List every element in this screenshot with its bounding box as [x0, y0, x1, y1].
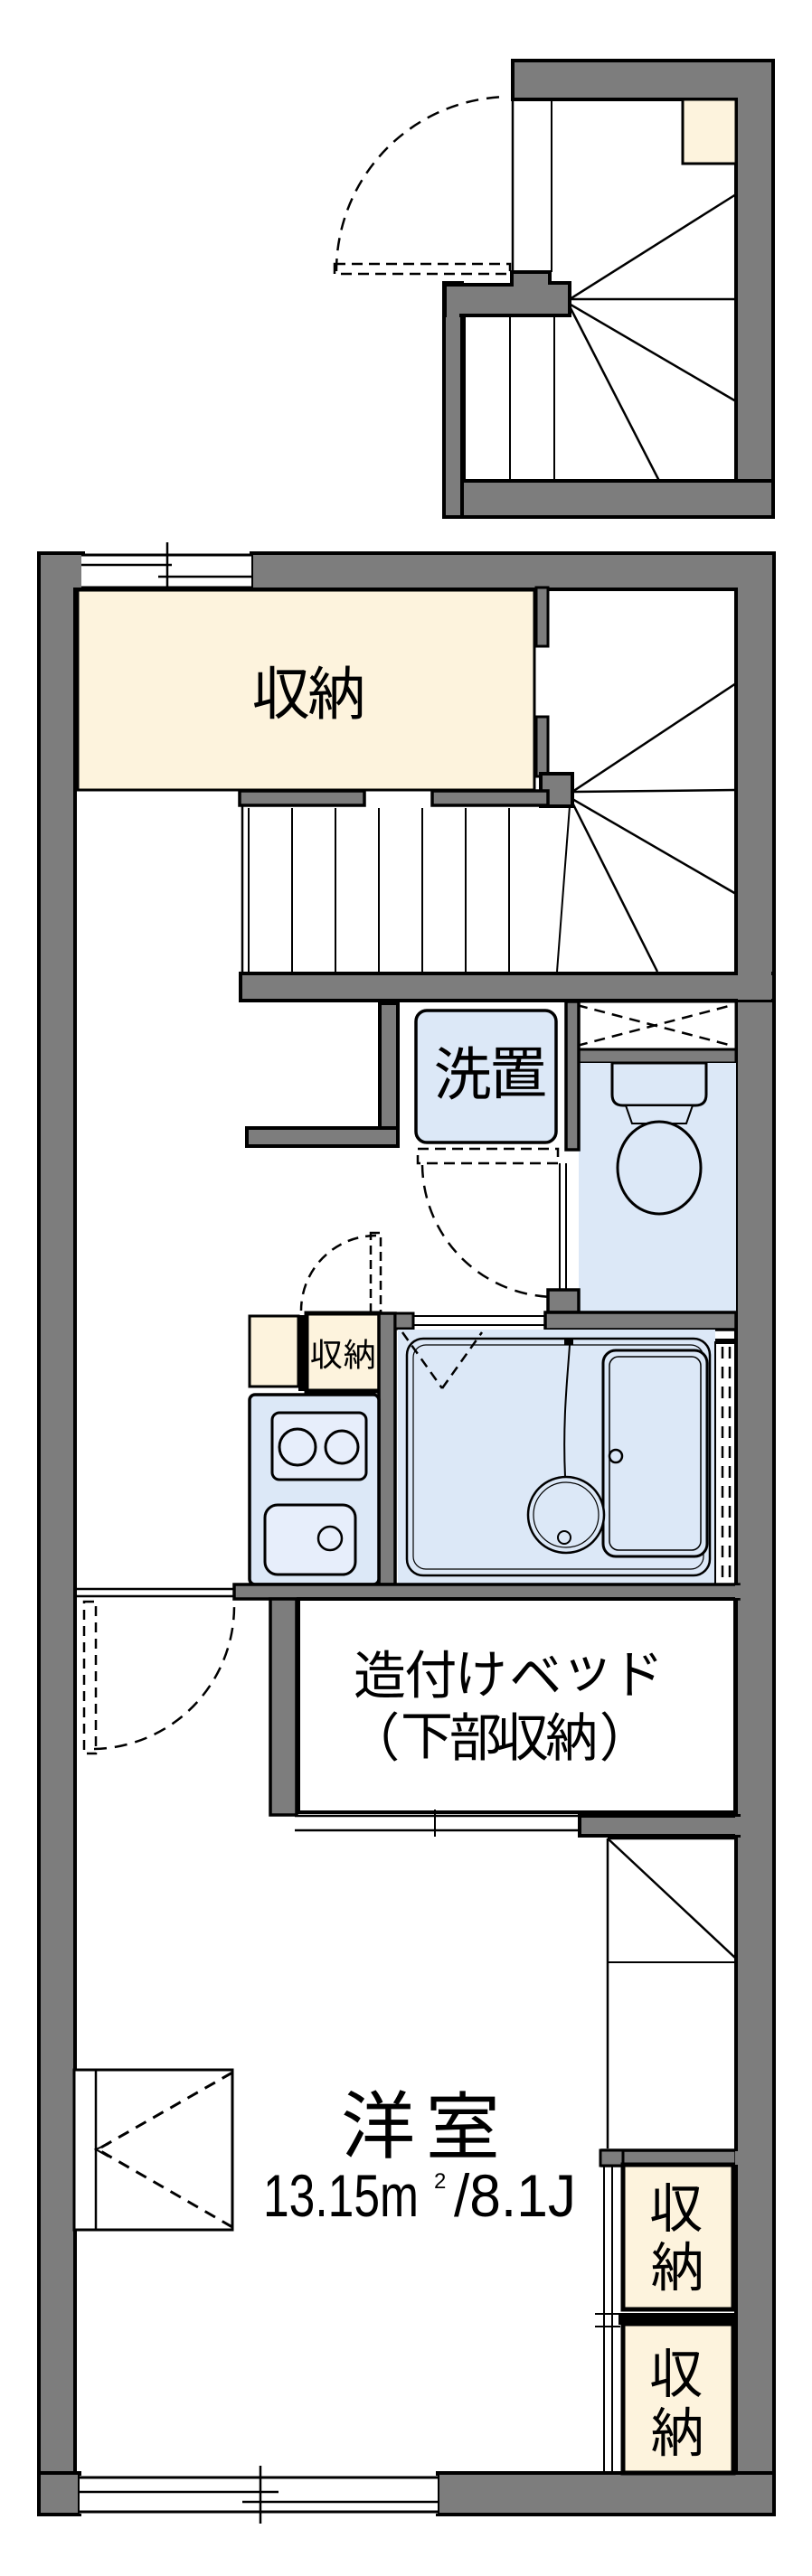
svg-text:/8.1J: /8.1J [454, 2162, 576, 2229]
svg-text:13.15m: 13.15m [263, 2162, 419, 2229]
svg-text:2: 2 [434, 2169, 446, 2194]
